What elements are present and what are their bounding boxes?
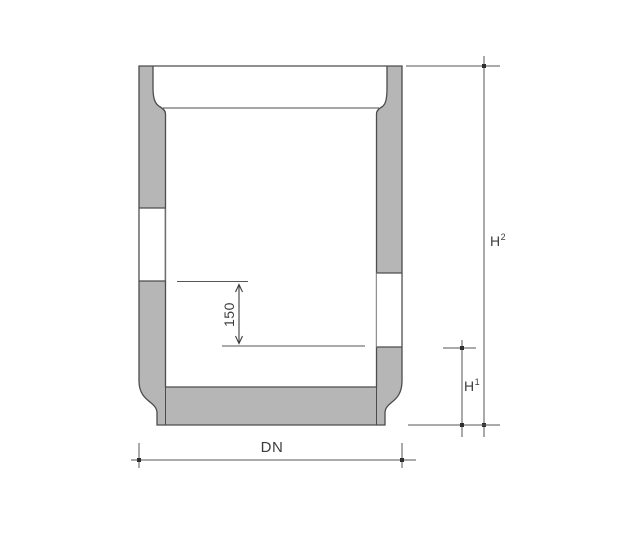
dimension-150: 150 [177,282,365,347]
dimension-h1: H1 [408,340,500,437]
left-gap-fill [140,208,166,281]
right-gap-fill [377,273,402,347]
pipe-section-diagram: 150 H2 H1 DN [0,0,640,559]
dn-right-tick-dot [400,458,404,462]
vessel-section [139,66,402,425]
dimension-150-label: 150 [221,302,237,327]
h1-label: H1 [464,377,480,394]
left-wall-joint-gap [139,208,166,281]
h1-bottom-tick-dot [460,423,464,427]
h2-top-tick-dot [482,64,486,68]
drawing-canvas: 150 H2 H1 DN [0,0,640,559]
dimension-dn: DN [131,439,416,468]
dn-label: DN [261,439,284,456]
right-wall-joint-gap [377,273,403,347]
dimension-h2: H2 [406,56,506,437]
h2-label: H2 [490,232,506,249]
h1-top-tick-dot [460,346,464,350]
vessel-body [139,66,402,425]
dn-left-tick-dot [137,458,141,462]
